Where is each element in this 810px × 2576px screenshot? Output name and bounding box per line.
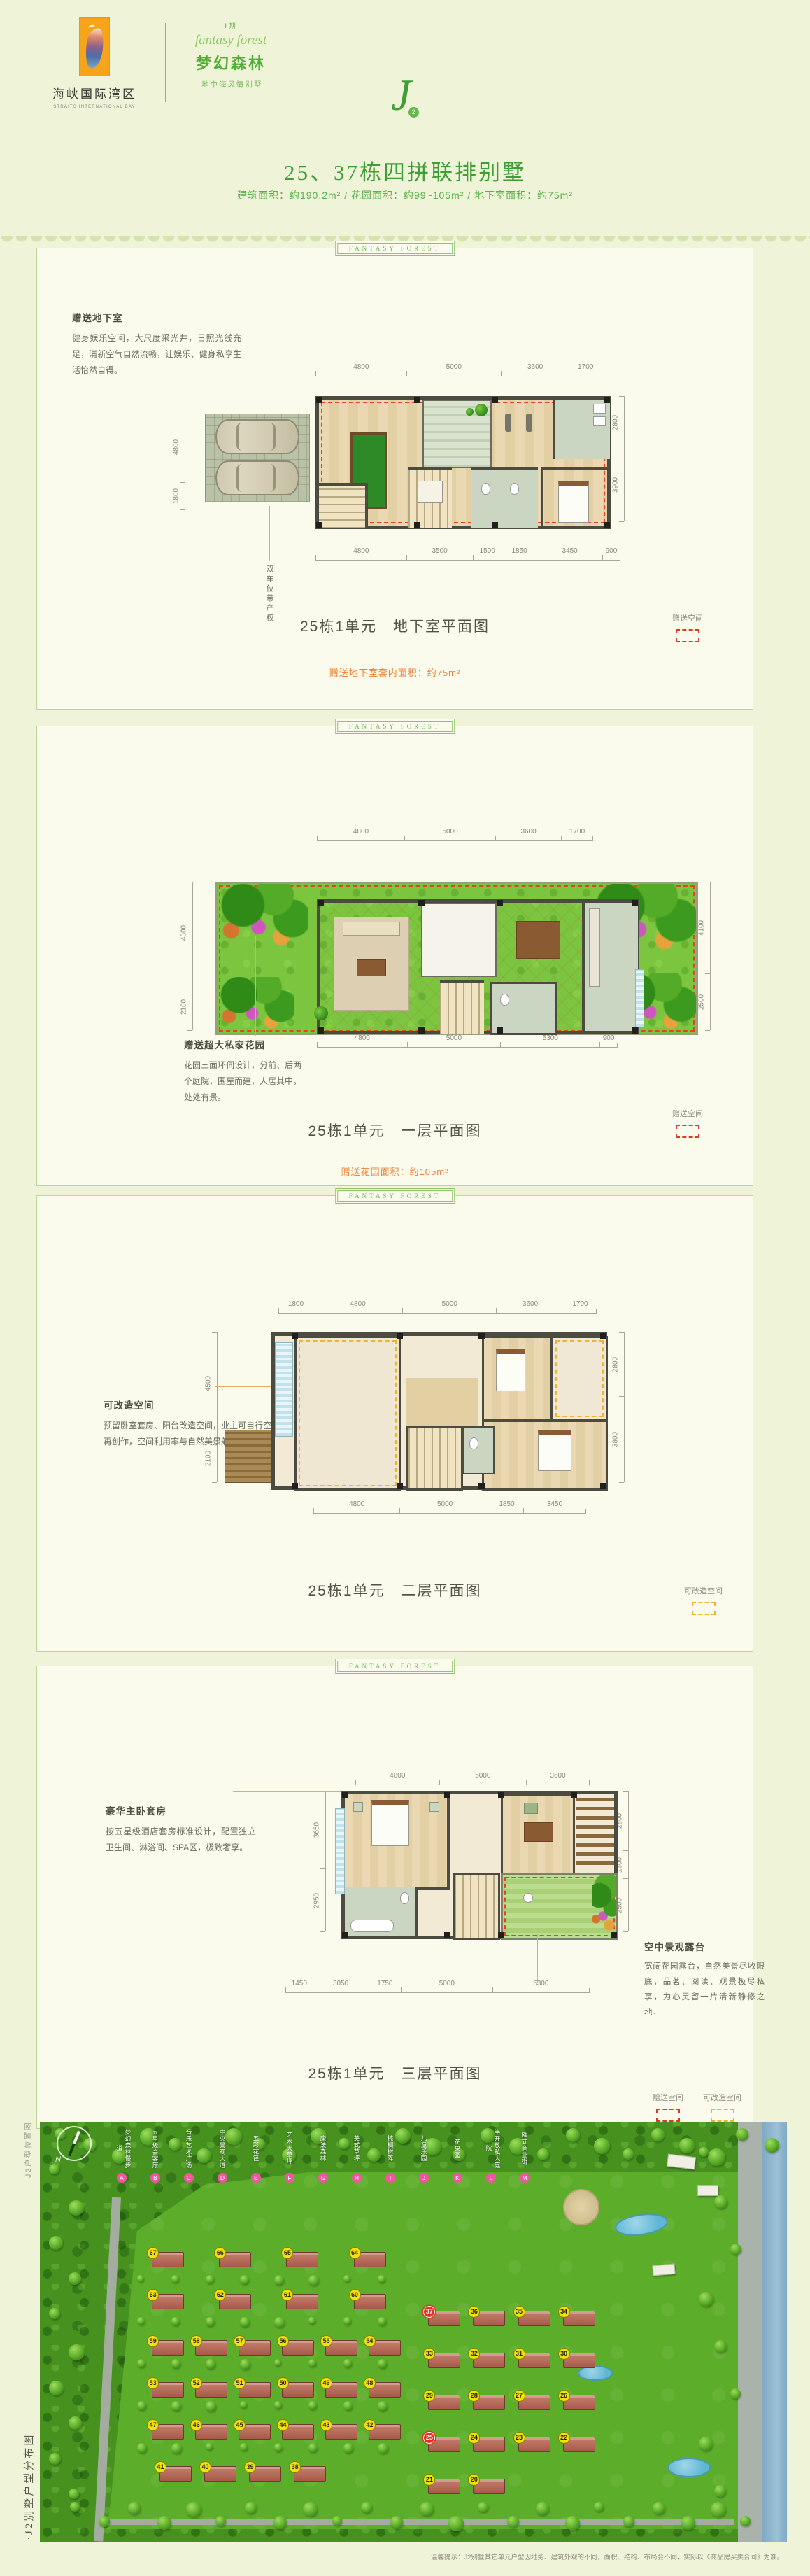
villa-building-40: 40 [204, 2466, 236, 2482]
sky-terrace [501, 1873, 618, 1940]
tree-icon [711, 2502, 726, 2517]
villa-building-57: 57 [239, 2340, 271, 2356]
villa-number: 51 [234, 2377, 246, 2389]
garden-note-body: 花园三面环伺设计，分前、后两个庭院，围屋而建，人居其中，处处有景。 [184, 1057, 301, 1105]
tree-icon [137, 2401, 146, 2410]
counter [589, 908, 600, 987]
bed-icon [558, 481, 589, 523]
villa-building-32: 32 [473, 2353, 505, 2368]
dimension-value: 4800 [353, 363, 369, 371]
dimension-segment: 4800 [180, 411, 185, 482]
villa-building-45: 45 [239, 2424, 271, 2440]
panel-floor2: Fantasy Forest 18004800500036001700 4500… [36, 1195, 753, 1652]
dimension-value: 3450 [547, 1500, 562, 1508]
dimension-segment: 1450 [285, 1987, 313, 1993]
legend-label: 可改造空间 [703, 2092, 741, 2103]
villa-building-25: 25 [428, 2437, 460, 2452]
dimension-segment: 1700 [561, 836, 592, 841]
villa-building-21: 21 [428, 2479, 460, 2494]
dimension-value: 4500 [180, 924, 188, 940]
map-legend-label: 欧式商业街 [520, 2127, 529, 2169]
column [492, 397, 498, 403]
villa-building-20: 20 [473, 2479, 505, 2494]
tree-icon [69, 2344, 85, 2360]
map-legend-item-J: 儿童乐园J [418, 2127, 430, 2183]
garden-connector-line [255, 936, 256, 1036]
column [342, 1792, 348, 1798]
sink-icon [593, 404, 606, 414]
map-legend-label: 儿童乐园 [420, 2127, 428, 2169]
column [397, 1483, 403, 1489]
dimension-value: 1850 [511, 547, 527, 555]
dimension-segment: 4800 [315, 371, 406, 376]
tree-icon [378, 2317, 386, 2325]
legend-swatch [676, 629, 699, 642]
tree-icon [378, 2359, 387, 2368]
villa-number: 30 [558, 2348, 570, 2360]
private-garden [215, 882, 698, 1035]
villa-building-39: 39 [249, 2466, 281, 2482]
villa-number: 42 [364, 2419, 376, 2431]
dimension-value: 3600 [550, 1772, 565, 1780]
tree-icon [420, 2502, 434, 2516]
dimension-segment: 4800 [355, 1780, 439, 1785]
dimension-segment: 4800 [315, 555, 406, 561]
fantasy-forest-tab: Fantasy Forest [335, 1188, 455, 1204]
dim-row-bottom: 480050005300900 [317, 1035, 618, 1048]
dimension-segment: 2100 [187, 983, 193, 1030]
map-legend-item-D: 中央景观大道D [216, 2127, 229, 2183]
dimension-segment: 5000 [399, 1508, 489, 1514]
villa-building-49: 49 [325, 2382, 357, 2398]
dimension-segment: 4800 [313, 1508, 399, 1514]
utility-room [553, 400, 610, 459]
floor1-house-plan [317, 899, 639, 1034]
tree-icon [206, 2317, 215, 2326]
stairs [440, 980, 484, 1034]
villa-number: 26 [558, 2390, 570, 2402]
living-room [327, 908, 415, 1023]
dimension-value: 2500 [698, 994, 706, 1010]
table [524, 1822, 553, 1842]
villa-number: 28 [468, 2390, 480, 2402]
villa-building-42: 42 [369, 2424, 401, 2440]
mat [524, 1803, 538, 1814]
dimension-segment: 5000 [401, 1987, 492, 1993]
kitchen [582, 903, 639, 1031]
dimension-value: 900 [603, 1034, 615, 1042]
plan-caption: 25栋1单元 三层平面图 [37, 2062, 753, 2083]
map-legend-label: 中央景观大道 [218, 2127, 227, 2169]
dimension-value: 3050 [333, 1980, 348, 1987]
column [478, 1333, 485, 1339]
villa-building-26: 26 [563, 2395, 595, 2410]
villa-building-38: 38 [294, 2466, 326, 2482]
legend-item-gift: 赠送空间 [672, 612, 703, 642]
gift-area-note: 赠送地下室套内面积：约75m² [37, 666, 753, 679]
map-lawn [40, 2122, 787, 2542]
legend-group: 赠送空间 [672, 612, 703, 642]
dimension-value: 5000 [442, 1300, 457, 1308]
dim-col-left: 45002100 [180, 882, 193, 1031]
villa-building-28: 28 [473, 2395, 505, 2410]
dimension-segment: 3650 [320, 1791, 326, 1868]
villa-number: 64 [349, 2247, 361, 2259]
map-legend-marker: M [520, 2173, 530, 2183]
tree-icon [343, 2401, 353, 2410]
tree-icon [49, 2381, 64, 2395]
dimension-segment: 3050 [313, 1987, 369, 1993]
villa-building-33: 33 [428, 2353, 460, 2368]
villa-building-67: 67 [152, 2252, 184, 2267]
fantasy-forest-tab-label: Fantasy Forest [337, 1190, 453, 1202]
villa-number: 60 [349, 2289, 361, 2301]
dimension-value: 5000 [439, 1980, 455, 1987]
villa-building-44: 44 [282, 2424, 314, 2440]
master-bathroom [345, 1887, 418, 1936]
villa-building-63: 63 [152, 2294, 184, 2309]
fantasy-forest-tab: Fantasy Forest [335, 241, 455, 256]
tree-icon [49, 2236, 63, 2250]
map-side-label-top: J2户型位置图 [22, 2121, 34, 2178]
map-legend-label: 艺术大草坪 [285, 2127, 294, 2169]
basement-note-body: 健身娱乐空间，大尺度采光井，日照光线充足，清新空气自然流畅，让娱乐、健身私享生活… [72, 330, 241, 378]
dimension-segment: 1800 [278, 1308, 313, 1314]
dim-col-right: 28003800 [612, 1332, 625, 1483]
villa-number: 58 [190, 2335, 202, 2347]
map-legend-marker: L [486, 2173, 496, 2183]
villa-building-47: 47 [152, 2424, 184, 2440]
dimension-segment: 1750 [369, 1987, 401, 1993]
column [292, 1483, 298, 1489]
basement-bedroom [541, 467, 610, 528]
tree-icon [378, 2275, 385, 2283]
plant-icon [466, 408, 474, 416]
villa-number: 52 [190, 2377, 202, 2389]
villa-building-27: 27 [518, 2395, 550, 2410]
tree-icon [343, 2359, 352, 2367]
dimension-segment: 1850 [490, 1508, 523, 1514]
tree-icon [69, 2416, 82, 2430]
villa-number: 40 [199, 2461, 211, 2473]
column [318, 900, 324, 906]
villa-number: 61 [281, 2289, 293, 2301]
map-legend-marker: A [117, 2173, 127, 2183]
tree-icon [566, 2128, 580, 2142]
dimension-segment: 1850 [502, 555, 537, 561]
dimension-value: 3600 [520, 828, 536, 836]
map-road [107, 2519, 734, 2525]
dimension-value: 4800 [350, 1300, 365, 1308]
dimension-value: 3650 [313, 1822, 321, 1838]
villa-building-59: 59 [152, 2340, 184, 2356]
dimension-value: 1750 [377, 1980, 392, 1987]
tree-icon [537, 2148, 549, 2160]
tree-icon [343, 2275, 350, 2282]
dimension-segment: 3600 [496, 1308, 564, 1314]
dimension-segment: 2500 [623, 1878, 629, 1931]
villa-number: 55 [320, 2335, 332, 2347]
tree-icon [206, 2275, 214, 2283]
basement-bathrooms [471, 467, 538, 528]
dimension-segment: 2950 [320, 1868, 326, 1931]
dimension-value: 1700 [578, 363, 593, 371]
column [498, 1792, 504, 1798]
tree-icon [171, 2275, 179, 2283]
dimension-value: 4800 [353, 828, 369, 836]
page-title: 25、37栋四拼联排别墅 [0, 155, 810, 186]
dimension-segment: 3600 [501, 371, 569, 376]
page-subtitle: 建筑面积：约190.2m² / 花园面积：约99~105m² / 地下室面积：约… [0, 188, 810, 202]
villa-number: 24 [468, 2432, 480, 2444]
dimension-segment: 3900 [619, 449, 625, 521]
villa-building-31: 31 [518, 2353, 550, 2368]
villa-building-55: 55 [325, 2340, 357, 2356]
villa-building-23: 23 [518, 2437, 550, 2452]
tree-icon [137, 2443, 147, 2453]
column [292, 1333, 298, 1339]
tree-icon [49, 2308, 60, 2319]
dim-row-top: 480050003600 [355, 1773, 590, 1785]
dim-row-bottom: 48003500150018503450900 [315, 548, 620, 561]
map-legend-marker: D [218, 2173, 227, 2183]
tree-icon [171, 2443, 182, 2454]
map-pond [667, 2458, 711, 2477]
column [478, 1483, 485, 1489]
villa-number: 67 [147, 2247, 159, 2259]
dimension-value: 3500 [432, 547, 448, 555]
villa-number: 46 [190, 2419, 202, 2431]
column [600, 1483, 606, 1489]
brand-phase: Ⅱ期 [175, 21, 287, 30]
dimension-segment: 1300 [623, 1850, 629, 1878]
column [497, 1027, 503, 1034]
tree-icon [69, 2200, 84, 2216]
tree-icon [69, 2272, 81, 2285]
compass-needle [68, 2131, 80, 2157]
map-legend-label: 梦幻森林慢步道 [115, 2127, 132, 2169]
dimension-value: 5300 [543, 1034, 558, 1042]
dimension-segment: 2800 [619, 1332, 625, 1396]
villa-number: 23 [513, 2432, 525, 2444]
terrace-connector-line [537, 1983, 642, 1983]
bathtub-icon [350, 1920, 394, 1932]
dimension-value: 5300 [533, 1980, 548, 1987]
stairs [406, 1426, 463, 1491]
master-suite-note: 豪华主卧套房 按五星级酒店套房标准设计，配置独立卫生间、淋浴间、SPA区，极致奢… [106, 1803, 256, 1856]
masterplan-map: 6766656463626160595857565554535251504948… [40, 2122, 787, 2542]
dimension-value: 4500 [205, 1376, 213, 1391]
column [492, 522, 498, 528]
tree-icon [171, 2317, 180, 2325]
map-legend-item-L: 半开放私人庭院L [485, 2127, 497, 2183]
dim-row-top: 18004800500036001700 [278, 1301, 597, 1314]
legend-group: 可改造空间 [684, 1585, 723, 1615]
tree-icon [171, 2359, 180, 2368]
dimension-value: 5000 [446, 1034, 462, 1042]
column [611, 1932, 617, 1938]
panel-floor1: Fantasy Forest 4800500036001700 45002100… [36, 726, 753, 1186]
villa-building-65: 65 [286, 2252, 318, 2267]
legend-swatch [711, 2109, 734, 2122]
villa-building-29: 29 [428, 2395, 460, 2410]
nightstand [429, 1802, 439, 1812]
master-bedroom [345, 1794, 450, 1890]
map-legend-marker: I [385, 2173, 395, 2183]
dim-row-top: 4800500036001700 [317, 829, 593, 841]
brochure-page: 海峡国际湾区 STRAITS INTERNATIONAL BAY Ⅱ期 fant… [0, 0, 810, 2576]
map-legend-marker: K [453, 2173, 462, 2183]
disclaimer-text: 温馨提示：J2别墅其它单元户型因地势、建筑外观的不同，面积、结构、布局会不同，实… [431, 2552, 783, 2561]
legend-group: 赠送空间 [672, 1108, 703, 1138]
tree-icon [378, 2443, 388, 2454]
garden-flora [218, 884, 308, 950]
tree-icon [245, 2502, 257, 2514]
map-legend-label: 棕榈树阵 [386, 2127, 395, 2169]
tree-icon [339, 2138, 350, 2149]
column [498, 1932, 504, 1938]
map-legend-item-K: 花果园K [451, 2127, 464, 2183]
dimension-value: 1850 [499, 1500, 514, 1508]
clubhouse-building [667, 2154, 696, 2170]
map-legend-label: 音乐艺术广场 [185, 2127, 193, 2169]
legend-item-convertible: 可改造空间 [684, 1585, 723, 1615]
panel-floor3: Fantasy Forest 480050003600 36502950 280… [36, 1666, 753, 2129]
tree-icon [378, 2401, 388, 2411]
balcony-glazing [335, 1808, 345, 1894]
dimension-segment: 5300 [492, 1987, 589, 1993]
villa-number: 41 [155, 2461, 166, 2473]
map-legend-item-F: 艺术大草坪F [283, 2127, 296, 2183]
dimension-segment: 3450 [523, 1508, 585, 1514]
tree-icon [137, 2317, 145, 2325]
villa-building-64: 64 [354, 2252, 386, 2267]
column [444, 1792, 450, 1798]
villa-number: 38 [289, 2461, 301, 2473]
dimension-value: 1700 [569, 828, 585, 836]
dim-col-left: 48001800 [173, 411, 185, 510]
dim-col-right: 28003900 [612, 396, 625, 522]
tree-icon [128, 2502, 141, 2514]
villa-building-58: 58 [195, 2340, 227, 2356]
villa-building-51: 51 [239, 2382, 271, 2398]
terrace-connector-line [537, 1934, 538, 1983]
dimension-segment: 5000 [407, 1042, 501, 1048]
villa-number: 50 [277, 2377, 289, 2389]
villa-number: 57 [234, 2335, 246, 2347]
dimension-value: 3450 [562, 547, 578, 555]
dim-row-bottom: 4800500018503450 [313, 1501, 586, 1514]
tree-icon [206, 2359, 215, 2369]
tree-icon [623, 2148, 634, 2160]
basement-note: 赠送地下室 健身娱乐空间，大尺度采光井，日照光线充足，清新空气自然流畅，让娱乐、… [72, 310, 241, 378]
map-legend-item-H: 美式草坪H [350, 2127, 363, 2183]
villa-number: 22 [558, 2432, 570, 2444]
tree-icon [367, 2148, 381, 2162]
garage-connector-line [269, 506, 270, 561]
convertible-room [294, 1336, 401, 1491]
dimension-value: 1800 [288, 1300, 304, 1308]
garden-note: 赠送超大私家花园 花园三面环伺设计，分前、后两个庭院，围屋而建，人居其中，处处有… [184, 1037, 301, 1105]
tree-icon [343, 2317, 351, 2325]
villa-building-62: 62 [219, 2294, 251, 2309]
tree-icon [303, 2502, 318, 2517]
villa-building-56: 56 [282, 2340, 314, 2356]
sink-icon [593, 416, 606, 426]
tree-icon [169, 2138, 181, 2151]
exercise-bike-icon [505, 414, 511, 432]
dimension-value: 4800 [390, 1772, 405, 1780]
villa-building-43: 43 [325, 2424, 357, 2440]
map-side-label-bottom: ·J2别墅户型分布图 [21, 2433, 36, 2540]
tree-icon [699, 2437, 713, 2451]
dimension-value: 2800 [612, 415, 620, 430]
legend-label: 赠送空间 [672, 1108, 703, 1119]
stairs [408, 467, 452, 528]
villa-building-50: 50 [282, 2382, 314, 2398]
villa-building-66: 66 [219, 2252, 251, 2267]
dimension-value: 1500 [480, 547, 495, 555]
balcony-glazing [275, 1342, 293, 1437]
island-shape [83, 27, 106, 70]
dimension-value: 3600 [523, 1300, 538, 1308]
villa-number: 21 [423, 2474, 435, 2486]
dimension-segment: 2500 [705, 973, 711, 1030]
nightstand [353, 1802, 363, 1812]
map-legend-label: 五星级会客厅 [151, 2127, 159, 2169]
convertible-outline [555, 1340, 604, 1417]
dimension-segment: 4800 [317, 1042, 407, 1048]
tree-icon [594, 2138, 610, 2154]
villa-building-22: 22 [563, 2437, 595, 2452]
dimension-segment: 5000 [402, 1308, 496, 1314]
legend-swatch [656, 2109, 680, 2122]
dimension-segment: 5300 [500, 1042, 599, 1048]
villa-number: 63 [147, 2289, 159, 2301]
bedroom-3 [551, 1336, 608, 1421]
tree-icon [699, 2292, 713, 2307]
dimension-value: 1700 [572, 1300, 588, 1308]
map-river [762, 2122, 787, 2542]
dimension-value: 5000 [446, 363, 462, 371]
dimension-value: 2100 [205, 1451, 213, 1466]
dimension-segment: 4800 [317, 836, 404, 841]
legend-swatch [676, 1125, 699, 1138]
dimension-segment: 3800 [619, 1396, 625, 1482]
compass-north-label: N [55, 2155, 61, 2164]
dimension-value: 2950 [313, 1892, 321, 1908]
dimension-segment: 1700 [564, 1308, 596, 1314]
toilet-icon [500, 994, 509, 1006]
unit-type-monogram: J2 [0, 73, 810, 118]
dimension-value: 4800 [173, 439, 180, 454]
dim-row-top: 4800500036001700 [315, 364, 602, 376]
dimension-segment: 5000 [406, 371, 501, 376]
villa-building-37: 37 [428, 2311, 460, 2326]
panel-basement: Fantasy Forest 赠送地下室 健身娱乐空间，大尺度采光井，日照光线充… [36, 248, 753, 710]
light-well [422, 400, 492, 468]
dimension-segment: 4100 [705, 882, 711, 973]
map-plaza [563, 2189, 599, 2225]
column [604, 397, 610, 403]
bedroom-4 [482, 1420, 608, 1491]
garden-flora [218, 977, 294, 1033]
map-legend-label: 五彩花径 [252, 2127, 260, 2169]
toilet-icon [400, 1892, 409, 1904]
legend-group: 赠送空间可改造空间 [653, 2092, 741, 2122]
coffee-table [357, 959, 386, 976]
dimension-value: 3600 [527, 363, 543, 371]
